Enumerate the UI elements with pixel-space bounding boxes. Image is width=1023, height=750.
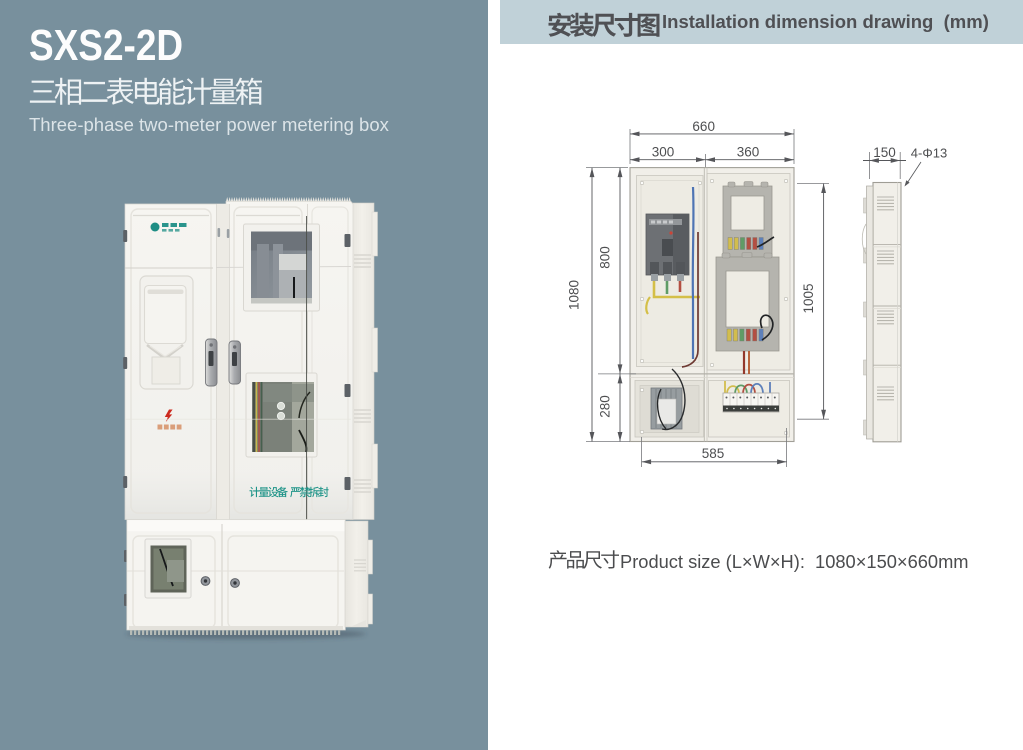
svg-text:585: 585 (702, 446, 725, 461)
svg-text:150: 150 (873, 145, 896, 160)
svg-text:660: 660 (692, 119, 715, 134)
svg-text:360: 360 (737, 145, 760, 160)
svg-text:300: 300 (652, 145, 675, 160)
svg-text:4-Φ13: 4-Φ13 (911, 146, 947, 161)
svg-text:1080: 1080 (567, 280, 582, 310)
svg-text:1005: 1005 (801, 283, 816, 313)
svg-text:280: 280 (598, 395, 613, 418)
svg-text:800: 800 (598, 246, 613, 269)
